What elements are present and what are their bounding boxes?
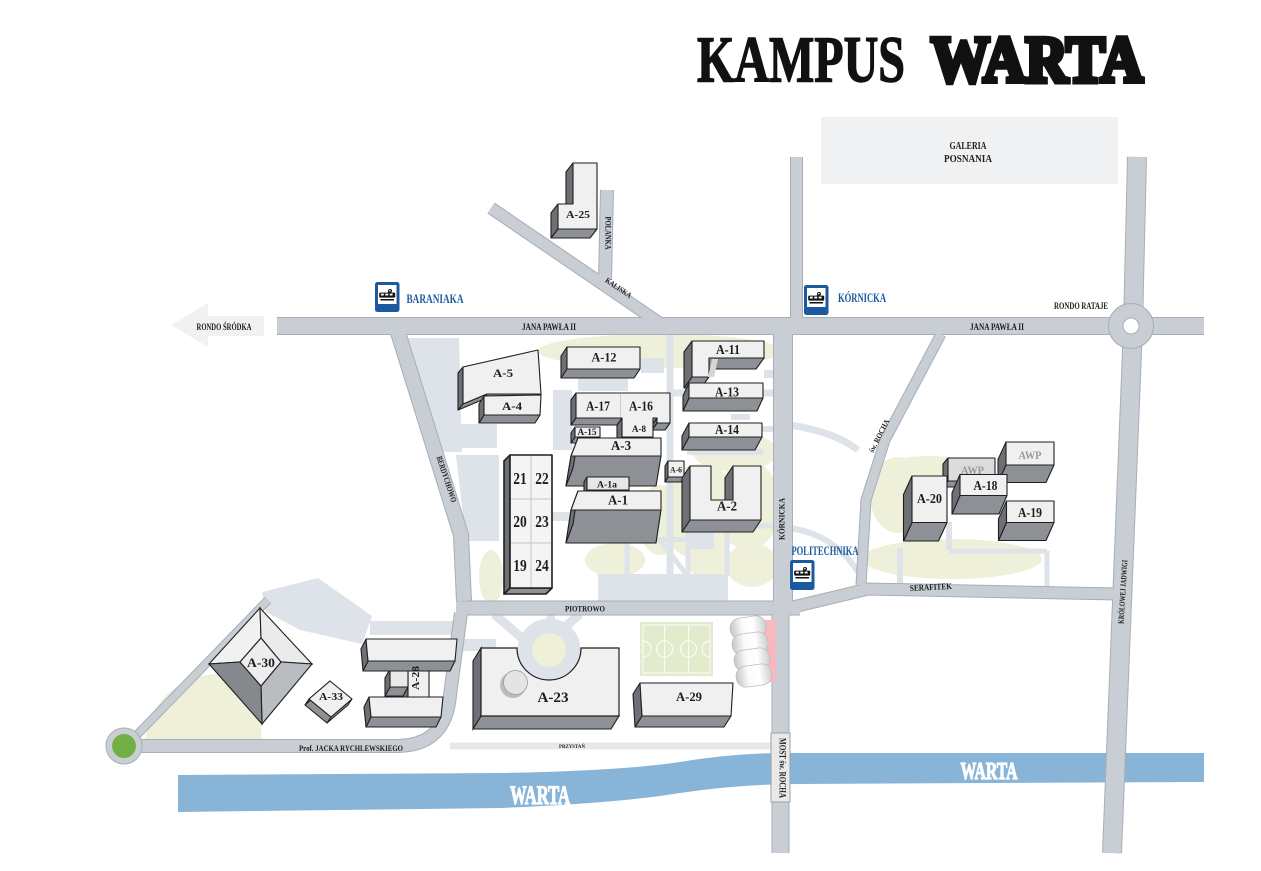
svg-text:A-1: A-1 (608, 493, 628, 508)
svg-text:KAMPUS: KAMPUS (697, 24, 905, 97)
svg-text:MOST św. ROCHA: MOST św. ROCHA (778, 738, 788, 798)
svg-text:WARTA: WARTA (961, 759, 1018, 785)
svg-text:WARTA: WARTA (510, 781, 570, 810)
svg-text:A-15: A-15 (578, 428, 597, 438)
svg-text:A-20: A-20 (917, 491, 942, 506)
svg-text:A-29: A-29 (676, 690, 702, 704)
svg-text:PIOTROWO: PIOTROWO (565, 604, 605, 614)
svg-text:A-11: A-11 (716, 342, 740, 357)
svg-text:RONDO RATAJE: RONDO RATAJE (1054, 301, 1108, 311)
svg-text:Prof. JACKA RYCHLEWSKIEGO: Prof. JACKA RYCHLEWSKIEGO (299, 743, 403, 753)
svg-text:POLITECHNIKA: POLITECHNIKA (792, 543, 859, 558)
svg-text:WARTA: WARTA (931, 24, 1143, 97)
svg-text:JANA PAWŁA II: JANA PAWŁA II (970, 323, 1024, 333)
svg-text:BARANIAKA: BARANIAKA (407, 291, 464, 306)
svg-text:A-8: A-8 (632, 425, 646, 435)
svg-text:A-13: A-13 (715, 385, 739, 400)
svg-text:A-16: A-16 (629, 399, 653, 414)
svg-text:KÓRNICKA: KÓRNICKA (838, 290, 886, 305)
svg-text:A-25: A-25 (566, 209, 591, 221)
svg-text:A-30: A-30 (247, 655, 275, 670)
svg-text:A-23: A-23 (538, 690, 569, 706)
svg-text:21: 21 (513, 469, 527, 488)
svg-text:A-14: A-14 (715, 422, 739, 437)
svg-text:A-2: A-2 (717, 499, 737, 514)
svg-text:A-4: A-4 (502, 399, 522, 413)
svg-text:A-18: A-18 (974, 478, 998, 493)
svg-text:19: 19 (513, 556, 527, 575)
svg-text:A-1a: A-1a (597, 481, 617, 491)
svg-text:POLANKA: POLANKA (604, 217, 613, 250)
svg-text:POSNANIA: POSNANIA (944, 153, 992, 165)
svg-text:PRZYSTAŃ: PRZYSTAŃ (559, 742, 585, 750)
svg-text:20: 20 (513, 512, 527, 531)
svg-text:A-28: A-28 (410, 665, 422, 690)
svg-text:JANA PAWŁA II: JANA PAWŁA II (522, 323, 576, 333)
svg-text:A-17: A-17 (586, 399, 610, 414)
svg-text:A-6: A-6 (670, 465, 682, 475)
svg-text:A-3: A-3 (611, 438, 631, 453)
svg-text:KÓRNICKA: KÓRNICKA (777, 498, 787, 540)
svg-text:A-33: A-33 (319, 691, 344, 703)
svg-text:AWP: AWP (1019, 448, 1042, 462)
svg-text:A-19: A-19 (1018, 505, 1042, 520)
svg-text:RONDO ŚRÓDKA: RONDO ŚRÓDKA (197, 322, 252, 332)
svg-text:24: 24 (535, 556, 549, 575)
svg-text:A-5: A-5 (493, 366, 513, 380)
svg-text:A-12: A-12 (592, 350, 617, 365)
svg-text:23: 23 (535, 512, 549, 531)
svg-text:22: 22 (535, 469, 549, 488)
svg-text:GALERIA: GALERIA (950, 141, 988, 152)
